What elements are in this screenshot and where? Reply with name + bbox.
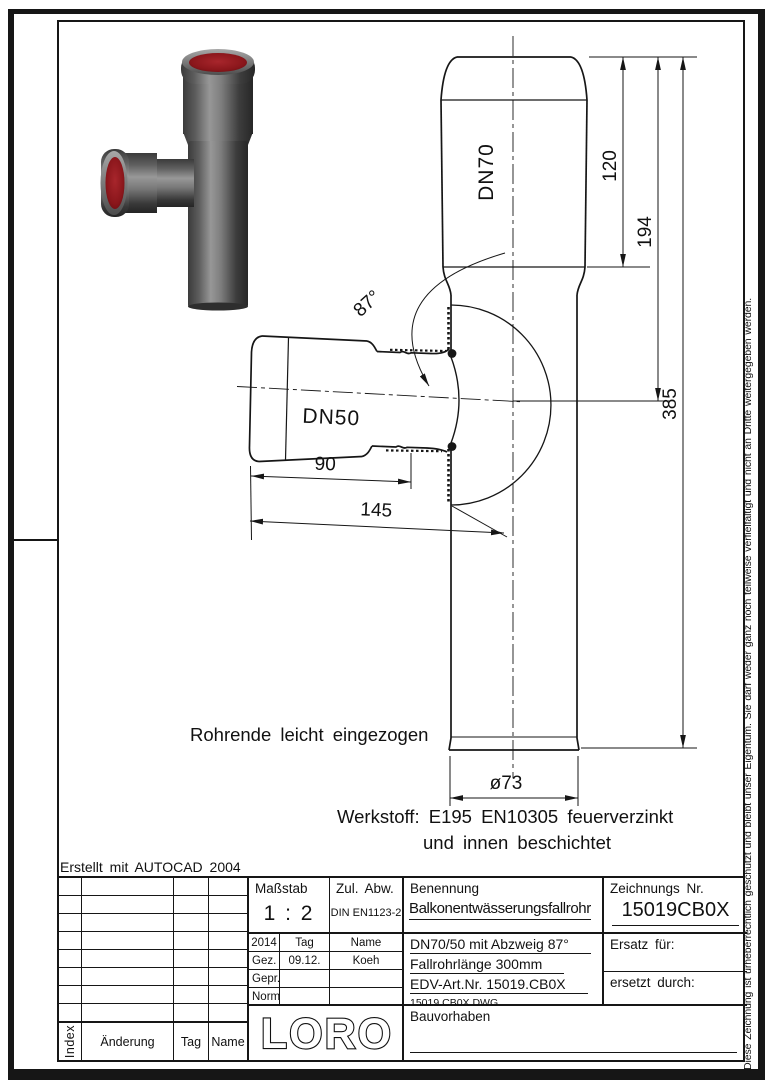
- project-cell: Bauvorhaben: [404, 1006, 747, 1060]
- revision-col-index: Index: [63, 1025, 77, 1058]
- approval-col-name: Name: [330, 934, 402, 952]
- render-top-opening: [189, 53, 247, 72]
- approval-gepr-date: [280, 970, 330, 988]
- description-line1: DN70/50 mit Abzweig 87°: [410, 936, 591, 954]
- scale-value: 1 : 2: [249, 902, 329, 926]
- revision-col-aenderung: Änderung: [82, 1023, 174, 1061]
- tolerance-label: Zul. Abw.: [330, 878, 402, 896]
- drawing-number-value: 15019CB0X: [612, 899, 739, 926]
- product-3d-render: [101, 49, 256, 311]
- approval-year: 2014: [249, 934, 280, 952]
- loro-logo: LORO: [249, 1006, 404, 1060]
- note-material-line2: und innen beschichtet: [423, 832, 611, 853]
- dim-label-194: 194: [635, 216, 656, 248]
- title-block: Index Änderung Tag Name Maßstab 1 : 2 Zu…: [57, 876, 745, 1062]
- scale-cell: Maßstab 1 : 2: [249, 878, 330, 934]
- approval-gepr-label: Gepr.: [249, 970, 280, 988]
- approval-gez-name: Koeh: [330, 952, 402, 970]
- render-main-body: [188, 141, 248, 308]
- copyright-note: Diese Zeichnung ist urheberrechtlich ges…: [742, 258, 758, 1070]
- created-with-note: Erstellt mit AUTOCAD 2004: [60, 859, 241, 875]
- tolerance-value: DIN EN1123-2: [330, 907, 402, 919]
- approval-norm-name: [330, 988, 402, 1006]
- replaced-by-label: ersetzt durch:: [604, 972, 747, 990]
- project-label: Bauvorhaben: [404, 1006, 747, 1024]
- designation-cell: Benennung Balkonentwässerungsfallrohr: [404, 878, 604, 934]
- loro-logo-text: LORO: [261, 1010, 393, 1058]
- revision-header-row: Index Änderung Tag Name: [59, 1022, 247, 1061]
- approval-gez-date: 09.12.: [280, 952, 330, 970]
- description-cell: DN70/50 mit Abzweig 87° Fallrohrlänge 30…: [404, 934, 604, 1006]
- pipe-label-dn70: DN70: [475, 143, 498, 201]
- drawing-sheet: 120 194 385 90 145 ø73 87° DN70 DN50 Roh…: [0, 0, 765, 1080]
- fold-mark: [13, 539, 57, 541]
- drawing-number-label: Zeichnungs Nr.: [604, 878, 747, 896]
- note-pipe-end: Rohrende leicht eingezogen: [190, 724, 428, 745]
- approval-norm-label: Norm.: [249, 988, 280, 1006]
- designation-label: Benennung: [404, 878, 602, 896]
- approval-norm-date: [280, 988, 330, 1006]
- approval-table: 2014 Tag Name Gez. 09.12. Koeh Gepr. Nor…: [249, 934, 404, 1006]
- replaced-by-cell: ersetzt durch:: [604, 972, 747, 1006]
- drawing-number-cell: Zeichnungs Nr. 15019CB0X: [604, 878, 747, 934]
- pipe-outline: [249, 57, 587, 750]
- revision-table: Index Änderung Tag Name: [59, 878, 249, 1060]
- company-logo-cell: LORO: [249, 1006, 404, 1060]
- dim-label-385: 385: [660, 388, 681, 420]
- weld-seam: [386, 307, 456, 503]
- description-line3: EDV-Art.Nr. 15019.CB0X: [410, 976, 588, 994]
- designation-value: Balkonentwässerungsfallrohr: [409, 900, 591, 920]
- dimension-lines: [250, 57, 697, 806]
- dim-label-diameter: ø73: [490, 773, 523, 794]
- dim-label-145: 145: [360, 499, 393, 521]
- approval-gez-label: Gez.: [249, 952, 280, 970]
- replacement-for-label: Ersatz für:: [604, 934, 747, 952]
- dim-label-120: 120: [600, 150, 621, 182]
- angle-label: 87°: [350, 286, 385, 321]
- revision-empty-rows: [59, 878, 247, 1022]
- dim-label-90: 90: [314, 454, 336, 476]
- tolerance-cell: Zul. Abw. DIN EN1123-2: [330, 878, 404, 934]
- note-material-line1: Werkstoff: E195 EN10305 feuerverzinkt: [337, 806, 673, 827]
- revision-col-tag: Tag: [174, 1023, 209, 1061]
- replacement-for-cell: Ersatz für:: [604, 934, 747, 972]
- description-line2: Fallrohrlänge 300mm: [410, 956, 564, 974]
- approval-gepr-name: [330, 970, 402, 988]
- pipe-label-dn50: DN50: [302, 405, 361, 431]
- approval-col-tag: Tag: [280, 934, 330, 952]
- render-branch-opening: [106, 157, 125, 209]
- project-entry-line: [410, 1052, 737, 1053]
- technical-drawing: 120 194 385 90 145 ø73 87° DN70 DN50 Roh…: [57, 20, 745, 876]
- scale-label: Maßstab: [249, 878, 329, 896]
- revision-col-name: Name: [209, 1023, 247, 1061]
